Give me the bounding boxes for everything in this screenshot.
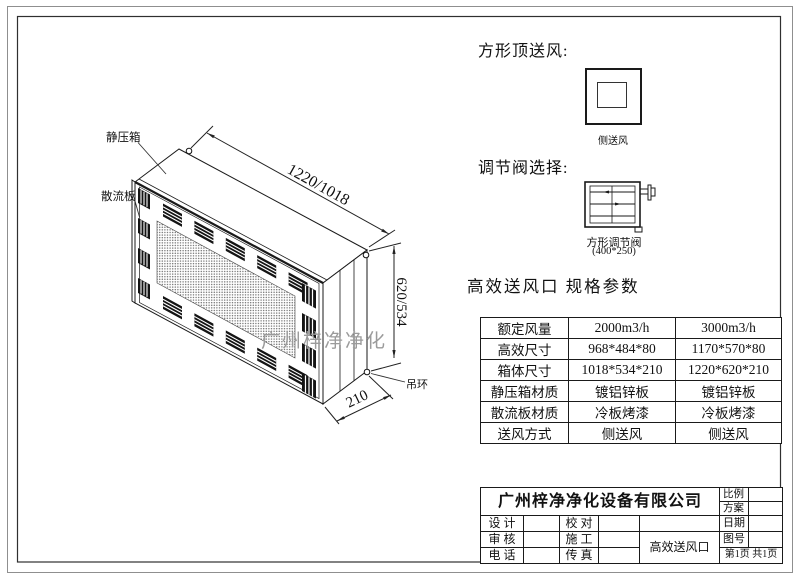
plenum-label: 静压箱 [106, 130, 141, 144]
dim-depth-text: 210 [344, 387, 371, 411]
spec-row: 高效尺寸 968*484*80 1170*570*80 [481, 339, 782, 360]
title-block: 广州梓净净化设备有限公司 设 计 校 对 审 核 施 工 电 话 传 真 比例 … [480, 487, 783, 564]
spec-heading: 高效送风口 规格参数 [467, 273, 640, 297]
field-plan: 方案 [720, 502, 748, 515]
spec-value: 1018*534*210 [569, 360, 676, 381]
watermark: 广州梓净净化 [261, 330, 387, 352]
product-name: 高效送风口 [640, 531, 719, 563]
spec-value: 侧送风 [676, 423, 782, 444]
spec-label: 散流板材质 [481, 402, 569, 423]
spec-label: 高效尺寸 [481, 339, 569, 360]
dim-height-text: 620/534 [393, 277, 409, 327]
spec-row: 箱体尺寸 1018*534*210 1220*620*210 [481, 360, 782, 381]
spec-label: 静压箱材质 [481, 381, 569, 402]
field-check: 校 对 [560, 515, 598, 531]
spec-value: 冷板烤漆 [676, 402, 782, 423]
valve-caption-size: (400*250) [581, 246, 647, 257]
valve-diagram [581, 176, 661, 238]
field-audit: 审 核 [481, 531, 523, 547]
spec-label: 送风方式 [481, 423, 569, 444]
field-scale: 比例 [720, 488, 748, 501]
page-indicator: 第1页 共1页 [720, 547, 782, 563]
field-fax: 传 真 [560, 547, 598, 563]
field-phone: 电 话 [481, 547, 523, 563]
field-date: 日期 [720, 515, 748, 531]
dim-length-text: 1220/1018 [284, 161, 352, 209]
spec-row: 散流板材质 冷板烤漆 冷板烤漆 [481, 402, 782, 423]
top-supply-heading: 方形顶送风: [478, 37, 568, 61]
spec-value: 侧送风 [569, 423, 676, 444]
drawing-sheet: 广州梓净净化 1220/1018 620/534 210 [0, 0, 800, 579]
spec-table: 额定风量 2000m3/h 3000m3/h 高效尺寸 968*484*80 1… [480, 317, 782, 444]
diffuser-label: 散流板 [101, 189, 136, 203]
spec-row: 额定风量 2000m3/h 3000m3/h [481, 318, 782, 339]
ring-label: 吊环 [406, 378, 428, 391]
spec-value: 镀铝锌板 [569, 381, 676, 402]
field-construct: 施 工 [560, 531, 598, 547]
spec-row: 静压箱材质 镀铝锌板 镀铝锌板 [481, 381, 782, 402]
spec-value: 2000m3/h [569, 318, 676, 339]
valve-heading: 调节阀选择: [478, 154, 568, 178]
company-name: 广州梓净净化设备有限公司 [481, 488, 719, 515]
spec-value: 968*484*80 [569, 339, 676, 360]
spec-value: 镀铝锌板 [676, 381, 782, 402]
spec-label: 箱体尺寸 [481, 360, 569, 381]
field-drawing-no: 图号 [720, 531, 748, 547]
field-design: 设 计 [481, 515, 523, 531]
spec-row: 送风方式 侧送风 侧送风 [481, 423, 782, 444]
spec-value: 3000m3/h [676, 318, 782, 339]
spec-value: 1170*570*80 [676, 339, 782, 360]
spec-value: 冷板烤漆 [569, 402, 676, 423]
spec-value: 1220*620*210 [676, 360, 782, 381]
top-supply-diagram [585, 68, 642, 125]
spec-label: 额定风量 [481, 318, 569, 339]
top-supply-diagram-inner [597, 82, 627, 108]
top-supply-caption: 侧送风 [583, 132, 643, 147]
